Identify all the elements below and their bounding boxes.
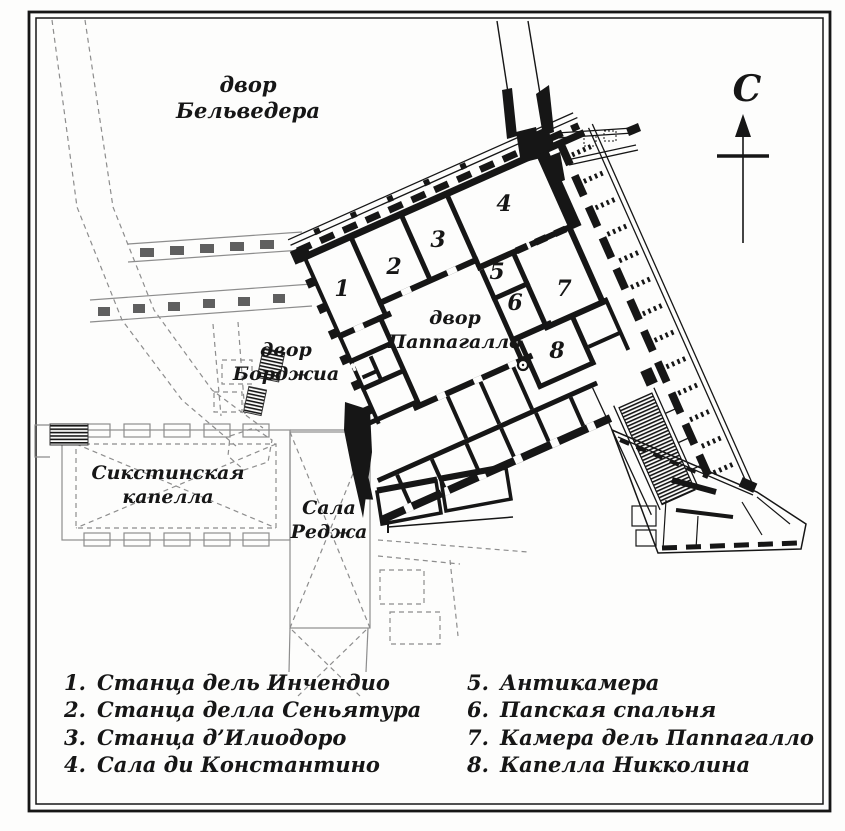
legend-item-8: 8. Капелла Никколина <box>467 752 750 777</box>
compass-north-arrow <box>717 114 769 243</box>
scanned-plan-page: двор Бельведера двор Борджиа двор Паппаг… <box>0 0 845 831</box>
room-number-2: 2 <box>386 254 401 280</box>
room-number-7: 7 <box>556 276 571 302</box>
palace-extras <box>290 21 806 553</box>
room-number-5: 5 <box>489 259 504 285</box>
room-number-8: 8 <box>549 338 564 364</box>
label-sistine-chapel: Сикстинская капелла <box>92 461 245 509</box>
legend-item-4: 4. Сала ди Константино <box>64 752 380 777</box>
label-belvedere-courtyard: двор Бельведера <box>176 72 320 124</box>
compass-north-letter: С <box>733 68 762 110</box>
legend-item-3: 3. Станца д’Илиодоро <box>64 725 346 750</box>
legend-item-2: 2. Станца делла Сеньятура <box>64 697 421 722</box>
label-borgia-courtyard: двор Борджиа <box>233 338 339 386</box>
legend-item-1: 1. Станца дель Инчендио <box>64 670 390 695</box>
room-number-1: 1 <box>334 276 349 302</box>
legend-item-5: 5. Антикамера <box>467 670 659 695</box>
room-number-3: 3 <box>430 227 445 253</box>
legend-item-6: 6. Папская спальня <box>467 697 716 722</box>
label-pappagallo-courtyard: двор Паппагалло <box>388 306 522 354</box>
label-sala-regia: Сала Реджа <box>291 496 368 544</box>
room-number-6: 6 <box>507 290 522 316</box>
room-number-4: 4 <box>496 191 511 217</box>
legend-item-7: 7. Камера дель Паппагалло <box>467 725 814 750</box>
